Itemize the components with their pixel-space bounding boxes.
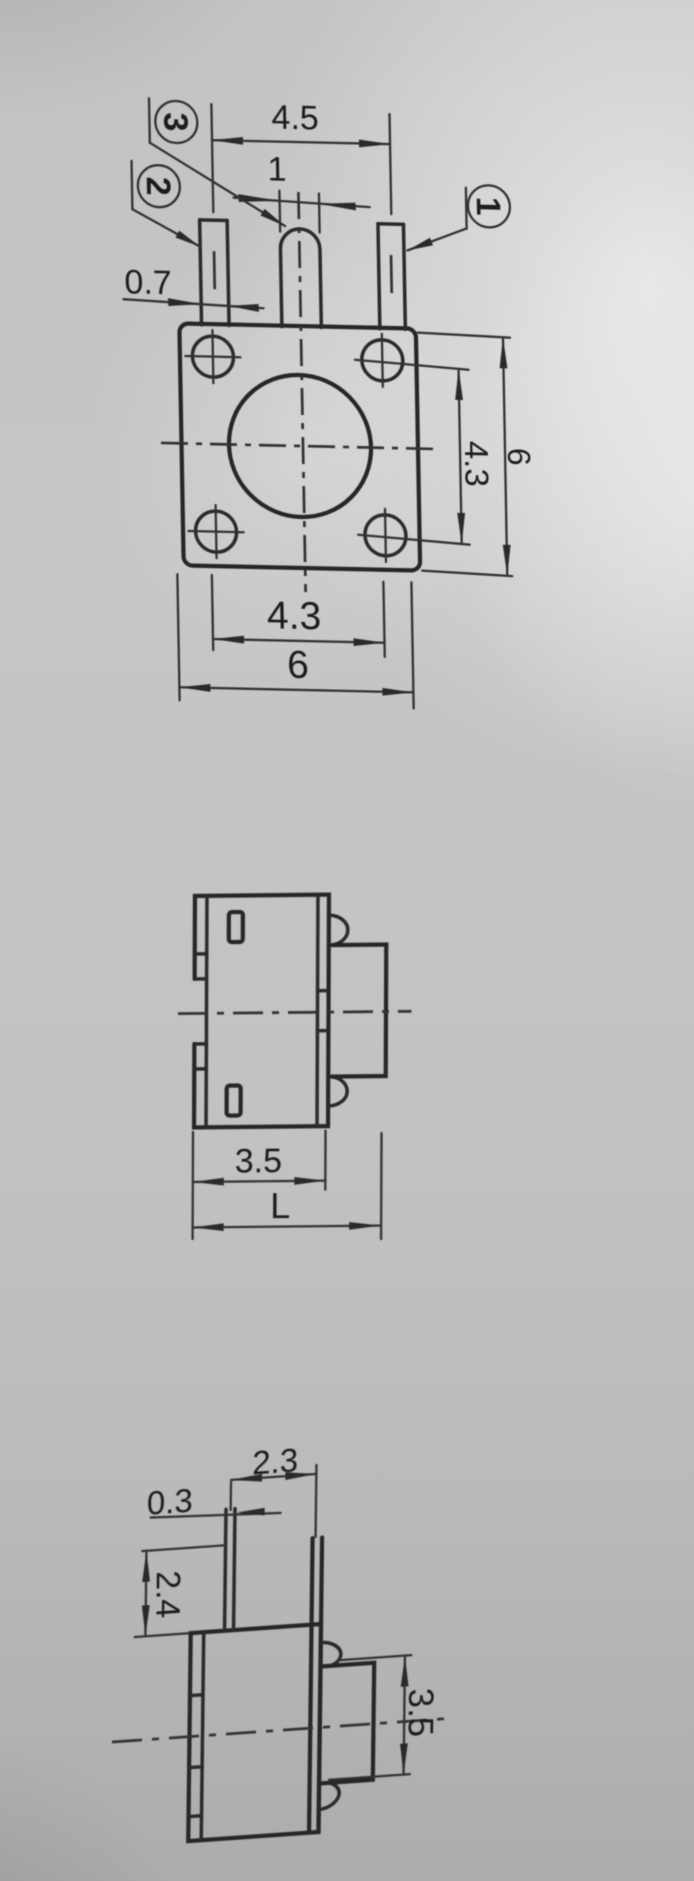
svg-text:6: 6	[501, 448, 537, 467]
svg-text:3.5: 3.5	[235, 1142, 282, 1180]
svg-text:6: 6	[287, 644, 309, 687]
svg-text:0.3: 0.3	[147, 1483, 193, 1523]
svg-text:2: 2	[139, 176, 177, 196]
svg-text:4.5: 4.5	[271, 99, 319, 138]
svg-text:2.4: 2.4	[148, 1569, 187, 1619]
svg-text:1: 1	[469, 196, 507, 216]
svg-text:4.3: 4.3	[458, 441, 496, 488]
svg-text:3: 3	[156, 112, 194, 132]
svg-text:1: 1	[267, 150, 287, 188]
svg-text:0.7: 0.7	[124, 263, 172, 302]
svg-text:L: L	[270, 1185, 290, 1226]
svg-text:3.5: 3.5	[401, 1687, 441, 1738]
svg-text:4.3: 4.3	[267, 594, 322, 638]
svg-text:2.3: 2.3	[252, 1442, 298, 1482]
